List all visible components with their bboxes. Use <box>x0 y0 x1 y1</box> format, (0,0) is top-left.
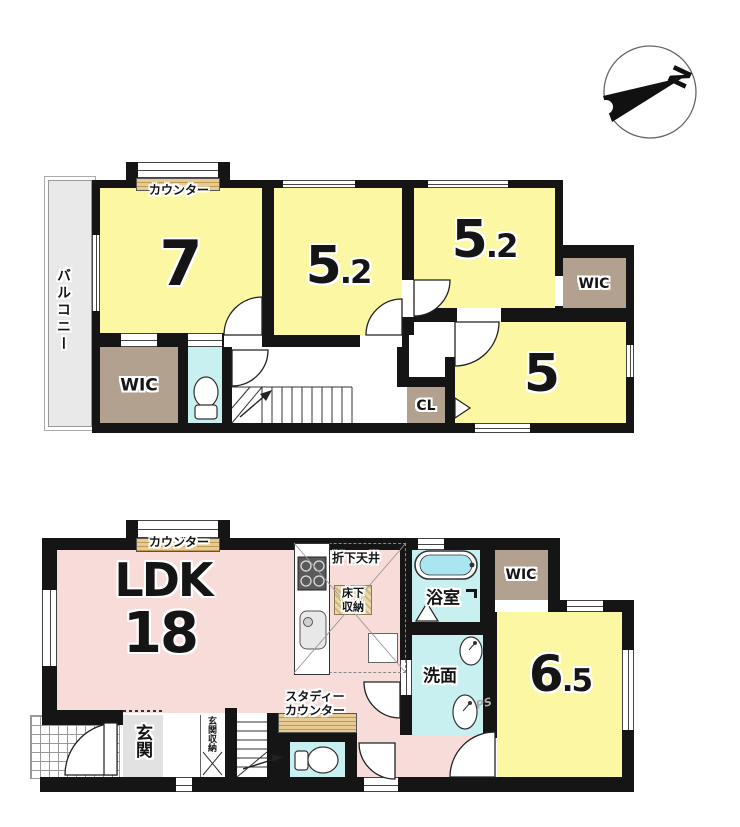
compass-needle-notch <box>599 100 613 114</box>
line2: 収納 <box>342 600 364 613</box>
entrance-door-leaf <box>104 723 117 775</box>
ldk-name: LDK <box>114 557 211 603</box>
wic-left-2f-label: WIC <box>120 378 158 395</box>
line1: スタディー <box>285 690 344 704</box>
room-5_2-mid-label: 5.2 <box>306 240 371 292</box>
value: 5 <box>524 344 558 404</box>
dropped-ceiling-label: 折下天井 <box>332 552 380 564</box>
door-arc-room5 <box>455 322 499 366</box>
folding-door-cl <box>455 398 470 418</box>
line1: 床下 <box>342 586 364 599</box>
line2: カウンター <box>285 704 345 718</box>
door-arc-hall-1f <box>364 682 400 718</box>
bath-door-handle <box>466 589 477 598</box>
value-fraction: .2 <box>486 227 517 265</box>
plan-annotations: N <box>0 0 740 827</box>
entrance-storage-label: 玄関収納 <box>206 716 215 752</box>
room-6_5-label: 6.5 <box>529 649 591 699</box>
room-5_2-right-label: 5.2 <box>452 214 517 266</box>
door-arc-room52-right <box>414 280 450 316</box>
counter-1f-label: カウンター <box>149 536 209 548</box>
study-counter-label: スタディーカウンター <box>285 690 345 719</box>
toilet-fixture-2f <box>194 377 218 419</box>
floor-plan: バルコニー カウンター 7 5.2 5.2 WIC WIC 5 CL <box>0 0 740 827</box>
value: 5 <box>306 236 340 296</box>
door-arc-room65 <box>450 732 495 777</box>
stairs-1f <box>237 722 267 777</box>
kitchen-sink <box>300 611 326 649</box>
washroom-label: 洗面 <box>423 669 457 686</box>
bathtub <box>415 551 477 579</box>
toilet-fixture-1f <box>295 747 338 773</box>
door-arc-room52-mid <box>366 299 402 335</box>
door-arc-room7 <box>224 297 262 335</box>
value-fraction: .2 <box>340 253 371 291</box>
value: 5 <box>452 210 486 270</box>
washbasin-bottom <box>453 695 477 729</box>
closet-label: CL <box>416 399 435 413</box>
entrance-label: 玄関 <box>133 724 150 758</box>
wic-right-2f-label: WIC <box>579 277 610 291</box>
stairs-2f <box>232 387 352 423</box>
compass: N <box>599 46 697 138</box>
counter-2f-label: カウンター <box>149 184 209 196</box>
washbasin-top <box>460 637 482 665</box>
value-fraction: .5 <box>562 663 591 699</box>
entrance-storage-door-x <box>203 752 222 775</box>
room-7-value: 7 <box>159 227 200 300</box>
ldk-size: 18 <box>123 606 197 662</box>
bathroom-label: 浴室 <box>426 591 460 608</box>
room-5-label: 5 <box>524 348 558 400</box>
door-arc-toilet-1f <box>359 743 395 779</box>
balcony-label: バルコニー <box>56 268 70 353</box>
wic-1f-label: WIC <box>506 568 537 582</box>
stove <box>298 557 326 590</box>
door-arc-hall-2f <box>232 350 268 386</box>
room-7-label: 7 <box>159 233 200 295</box>
underfloor-storage-label: 床下収納 <box>342 586 364 614</box>
value: 6 <box>529 645 562 703</box>
